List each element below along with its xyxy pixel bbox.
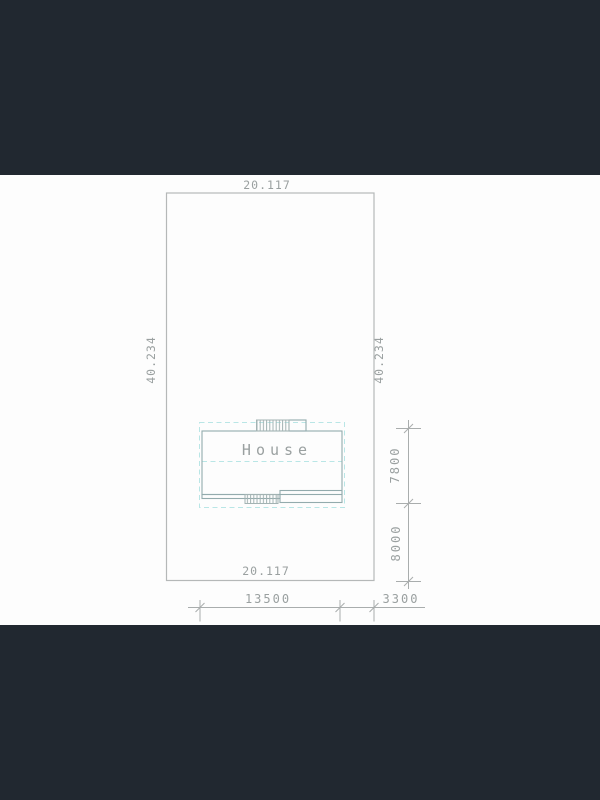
rear-setback-dim-label: 8000 xyxy=(389,525,403,562)
site-plan-drawing: 20.117 20.117 40.234 40.234 7800 8000 13… xyxy=(0,0,600,800)
side-setback-dim-label: 3300 xyxy=(383,592,420,606)
house-width-dim-label: 13500 xyxy=(245,592,291,606)
bottom-stairs-hatch xyxy=(245,495,278,504)
top-stairs-hatch xyxy=(257,420,290,431)
house-depth-dim-label: 7800 xyxy=(388,447,402,484)
lot-depth-left-label: 40.234 xyxy=(144,336,158,384)
cad-site-plan-view: 20.117 20.117 40.234 40.234 7800 8000 13… xyxy=(0,0,600,800)
lot-width-top-label: 20.117 xyxy=(243,178,291,192)
lot-width-bottom-label: 20.117 xyxy=(242,564,290,578)
bottom-letterbox-band xyxy=(0,625,600,800)
top-letterbox-band xyxy=(0,0,600,175)
lot-depth-right-label: 40.234 xyxy=(372,336,386,384)
house-label: House xyxy=(242,441,312,459)
